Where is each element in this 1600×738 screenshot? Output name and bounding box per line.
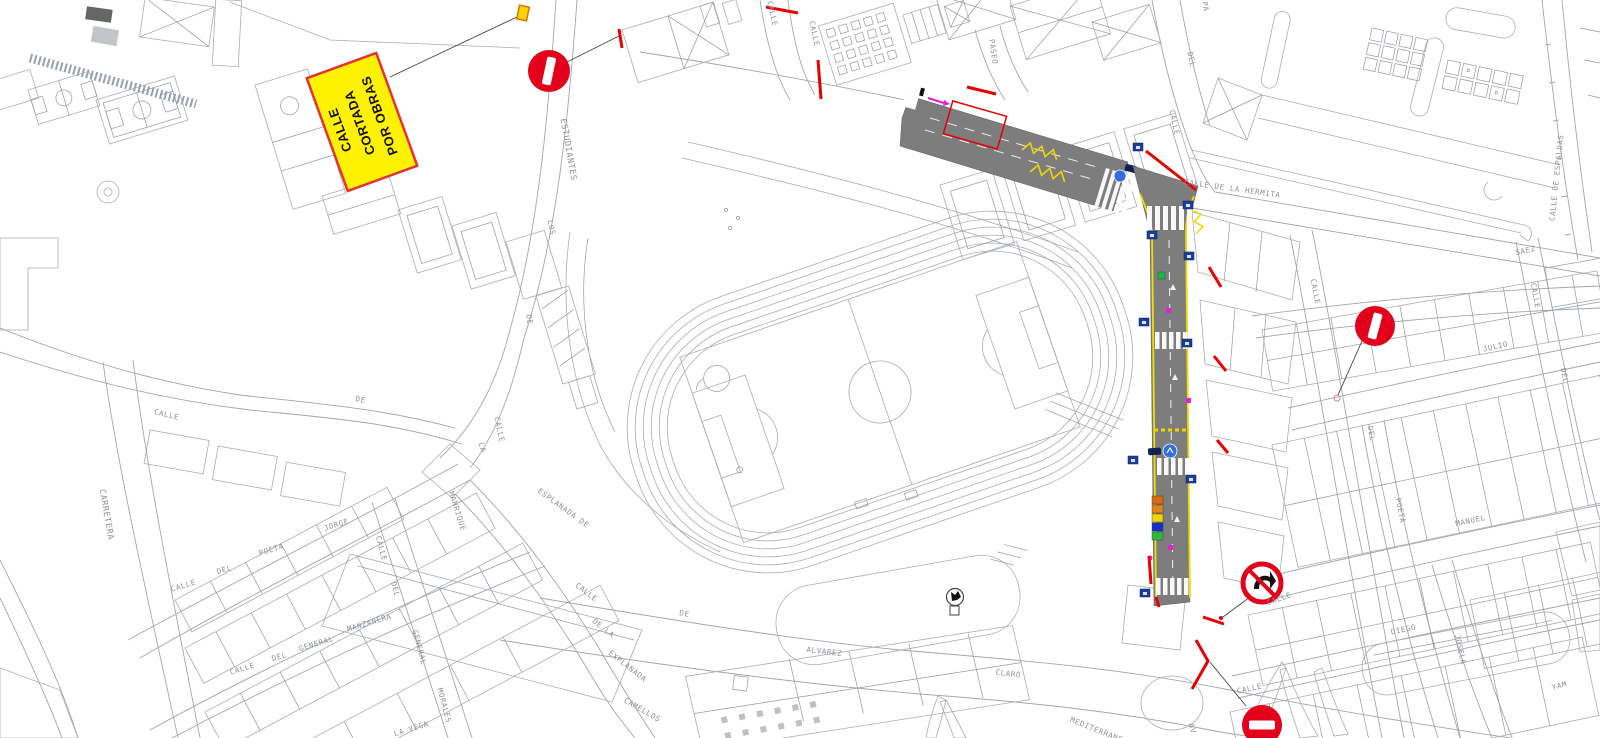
street-label-mediterraneo: MEDITERRANEO	[1069, 715, 1129, 738]
street-label-la-vega: LA VEGA	[393, 719, 430, 738]
site-plan-map: CALLE CORTADA POR OBRAS	[0, 0, 1600, 738]
works-closure-sign: CALLE CORTADA POR OBRAS	[307, 53, 418, 191]
street-label-morales: MORALES	[435, 687, 453, 724]
north-buildings	[622, 0, 1161, 85]
northeast-complex	[1190, 6, 1600, 241]
street-network	[0, 0, 1600, 738]
grid-facade-building	[819, 0, 977, 85]
street-label-poeta-r: POETA	[1393, 497, 1407, 524]
street-label-camellos: CAMELLOS	[622, 696, 662, 724]
works-closure-sign-group: CALLE CORTADA POR OBRAS	[307, 5, 530, 191]
street-label-los: LOS	[546, 219, 558, 236]
street-label-del-r2: DEL	[1366, 425, 1378, 442]
street-label-estudiantes: ESTUDIANTES	[558, 118, 579, 182]
street-label-saez: SAEZ	[1515, 244, 1537, 257]
street-label-yam: YAM	[1551, 679, 1568, 691]
street-label-av: AV	[1187, 722, 1198, 734]
street-label-general-v: GENERAL	[410, 629, 428, 666]
street-label-calle-hermita: CALLE DE LA HERMITA	[1184, 177, 1282, 199]
street-label-josela: JOSELA	[1453, 634, 1468, 666]
street-label-del-v: DEL	[389, 581, 402, 598]
monument-symbol	[947, 589, 964, 616]
south-plaza-area	[686, 541, 1575, 738]
street-label-carretera: CARRETERA	[97, 488, 116, 540]
street-label-calle-oeste: CALLE	[492, 416, 506, 443]
street-furniture-stack	[1152, 496, 1163, 540]
west-building	[536, 286, 604, 411]
closure-marker	[517, 5, 530, 21]
street-label-paseo: PASEO	[987, 38, 999, 65]
street-label-manuel: MANUEL	[1455, 513, 1487, 528]
street-label-pa: PA	[1200, 1, 1211, 13]
street-label-diego: DIEGO	[1390, 622, 1417, 636]
street-label-calle-n1: CALLE	[765, 0, 779, 27]
street-label-del-r1: DEL	[1559, 367, 1571, 384]
street-label-la: LA	[477, 441, 488, 453]
street-label-de-oeste: DE	[524, 314, 535, 326]
street-label-calle-sw: CALLE	[574, 581, 600, 604]
no-entry-sign-3	[1210, 662, 1282, 738]
courtyard-grid-a	[1363, 28, 1427, 81]
street-label-calle-n2: CALLE	[807, 20, 821, 47]
street-label-calle-r2: CALLE	[1529, 282, 1542, 309]
street-label-del-pj: DEL	[216, 563, 233, 576]
street-label-claro: CLARO	[995, 667, 1021, 679]
street-label-de-nw: DE	[355, 394, 367, 405]
football-pitch	[680, 241, 1080, 542]
courtyard-grid-b	[1442, 60, 1523, 104]
athletics-track	[590, 174, 1170, 611]
street-label-del-gm: DEL	[271, 650, 288, 663]
street-label-poeta-pj: POETA	[258, 542, 285, 558]
south-building	[686, 602, 1030, 738]
street-label-manrique: MANRIQUE	[447, 490, 468, 532]
housing-rows-southwest	[0, 487, 619, 738]
site-plan-canvas: CALLE CORTADA POR OBRAS	[0, 0, 1600, 738]
street-label-esplanada-de: ESPLANADA DE	[536, 486, 591, 529]
sports-complex-buildings	[0, 0, 562, 506]
street-label-de-blvd: DE	[679, 608, 691, 619]
street-label-manzanera: MANZANERA	[346, 612, 393, 634]
street-label-calle-espaldas: CALLE DE ESPALDAS	[1547, 134, 1565, 221]
street-label-general-gm: GENERAL	[298, 634, 335, 653]
street-label-del-ne: DEL	[1185, 51, 1197, 68]
no-turn-sign	[1219, 564, 1281, 620]
stadium	[322, 113, 1198, 702]
street-label-alvarez: ALVAREZ	[806, 645, 843, 658]
street-label-calle-r1: CALLE	[1309, 278, 1322, 305]
street-label-calle-pj: CALLE	[170, 578, 197, 594]
street-label-calle-v: CALLE	[374, 535, 389, 562]
street-label-explanada: EXPLANADA	[607, 648, 649, 683]
street-label-calle-nw: CALLE	[153, 407, 180, 422]
